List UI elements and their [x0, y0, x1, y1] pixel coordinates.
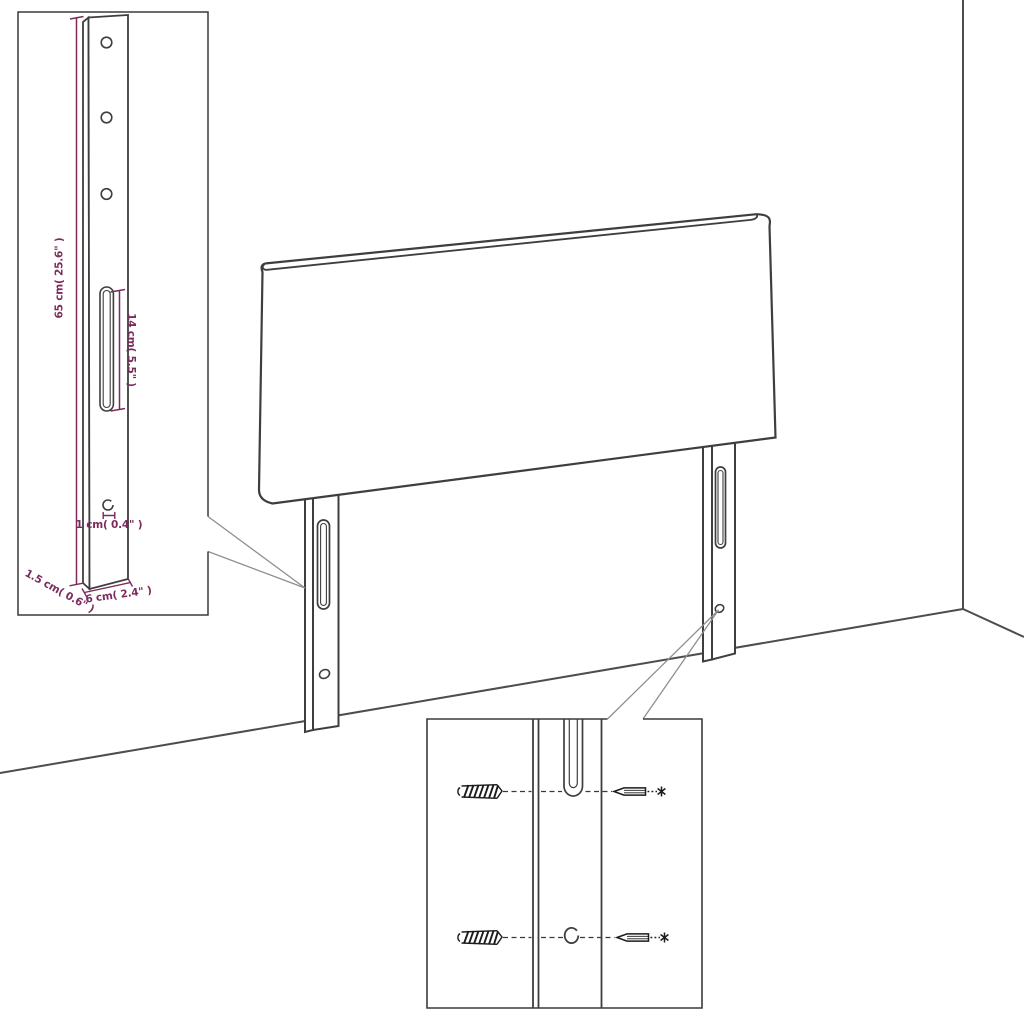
- product-dimension-diagram: 65 cm( 25.6" ) 14 cm( 5.5" ) 1 cm( 0.4" …: [0, 0, 1024, 1024]
- headboard-panel: [259, 214, 776, 503]
- diagram-canvas: 65 cm( 25.6" ) 14 cm( 5.5" ) 1 cm( 0.4" …: [0, 0, 1024, 1024]
- headboard-right-leg: [703, 440, 735, 662]
- leg-detail-inset: 65 cm( 25.6" ) 14 cm( 5.5" ) 1 cm( 0.4" …: [18, 12, 208, 615]
- slot-length-label: 14 cm( 5.5" ): [125, 313, 137, 387]
- left-leg-side-face: [305, 495, 313, 732]
- floor-line-right: [963, 609, 1024, 637]
- headboard-left-leg: [305, 491, 339, 732]
- hardware-callout-lines: [608, 610, 719, 719]
- leg-length-label: 65 cm( 25.6" ): [54, 238, 66, 319]
- headboard-panel-face: [259, 214, 776, 503]
- hardware-detail-inset: [427, 719, 702, 1008]
- right-leg-side-face: [703, 443, 712, 662]
- left-leg-callout-lines: [208, 517, 305, 589]
- hole-diameter-label: 1 cm( 0.4" ): [76, 519, 143, 531]
- leg-detail-front-face: [89, 15, 129, 589]
